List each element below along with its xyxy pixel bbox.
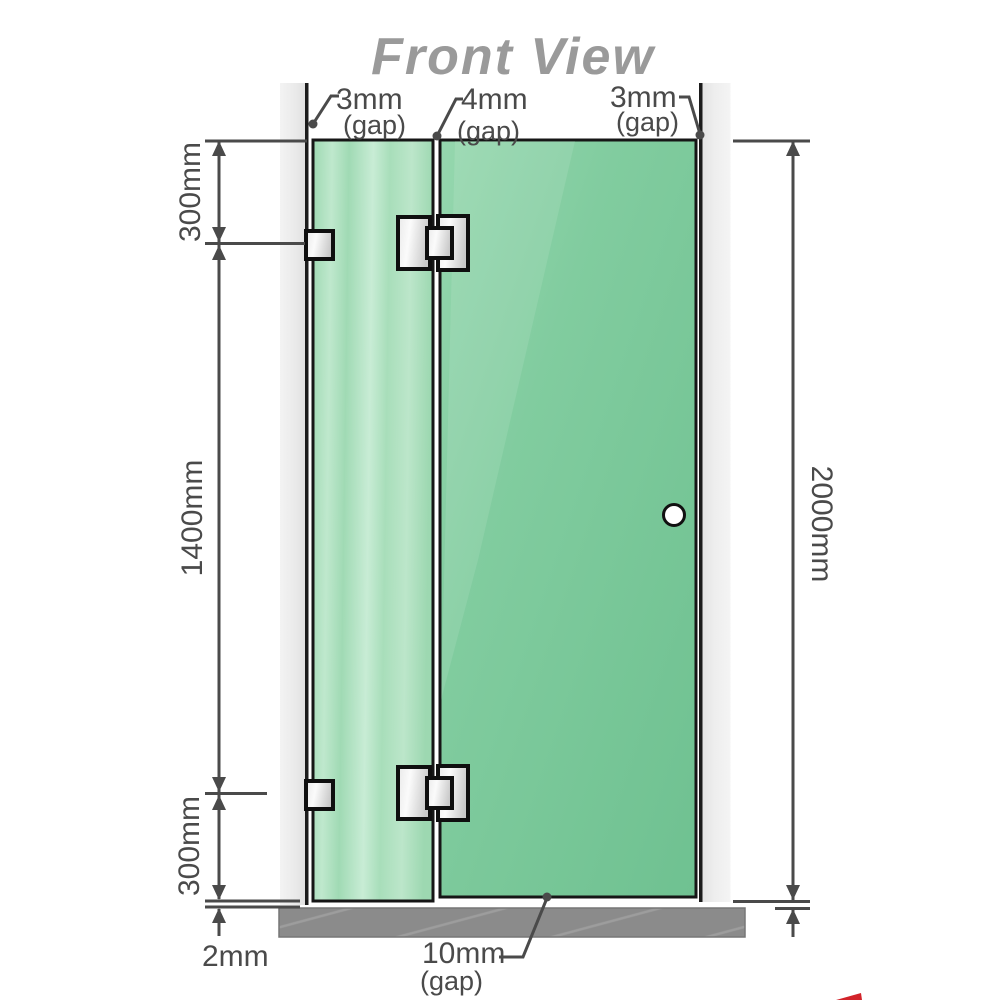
left-wall-strip — [280, 83, 305, 905]
hinge-knuckle — [427, 778, 452, 808]
right-height-dimension-label: 2000mm — [805, 466, 838, 583]
door-knob — [664, 505, 685, 526]
leader-dot — [696, 131, 705, 140]
top-gap-middle-qualifier: (gap) — [457, 116, 520, 146]
left-bottom-dimension-label: 300mm — [173, 796, 206, 896]
top-gap-middle-value: 4mm — [461, 83, 528, 116]
base-gap-label: 2mm — [202, 940, 269, 973]
right-wall — [699, 83, 731, 902]
right-wall-strip — [703, 83, 731, 902]
wall-bracket-top — [306, 231, 333, 259]
left-middle-dimension-label: 1400mm — [176, 460, 209, 577]
top-gap-right-qualifier: (gap) — [616, 107, 679, 137]
leader-dot — [433, 132, 442, 141]
left-top-dimension-label: 300mm — [174, 142, 207, 242]
hinge-knuckle — [427, 228, 452, 258]
floor-base-bar — [279, 908, 745, 937]
leader-dot — [543, 893, 552, 902]
right-wall-edge-line — [699, 83, 703, 902]
wall-bracket-bottom — [306, 781, 333, 809]
page-title: Front View — [371, 28, 656, 86]
leader-dot — [309, 120, 318, 129]
shower-screen-front-view-diagram: Front View — [0, 0, 1000, 1000]
top-gap-left-qualifier: (gap) — [343, 110, 406, 140]
bottom-gap-qualifier: (gap) — [420, 966, 483, 996]
